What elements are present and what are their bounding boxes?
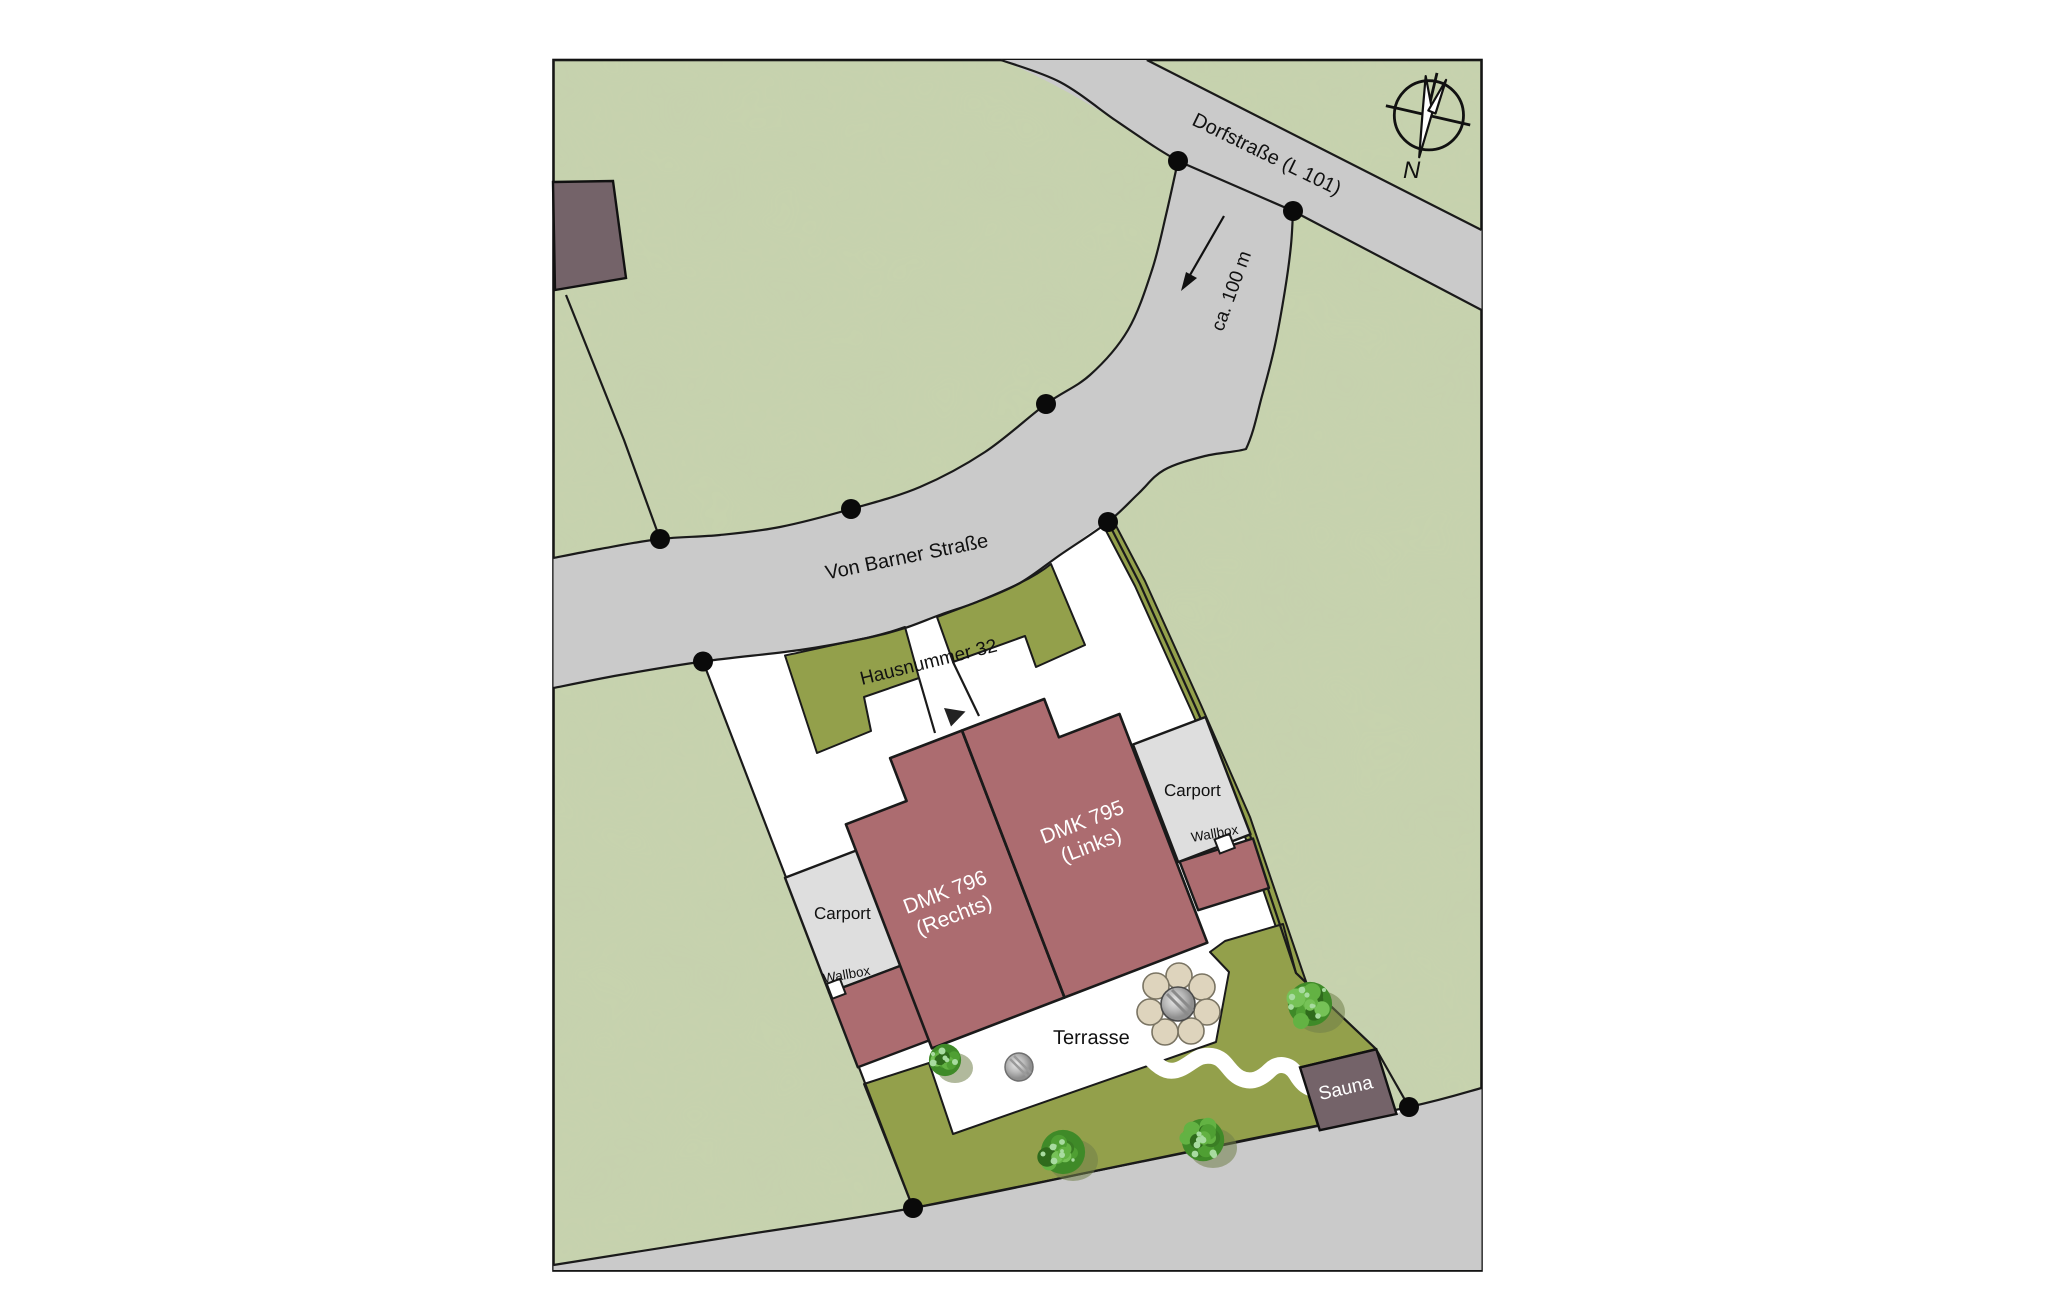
svg-text:Terrasse: Terrasse	[1053, 1027, 1130, 1049]
svg-text:Carport: Carport	[814, 904, 871, 923]
svg-text:Carport: Carport	[1164, 781, 1221, 800]
svg-text:N: N	[1403, 157, 1421, 184]
